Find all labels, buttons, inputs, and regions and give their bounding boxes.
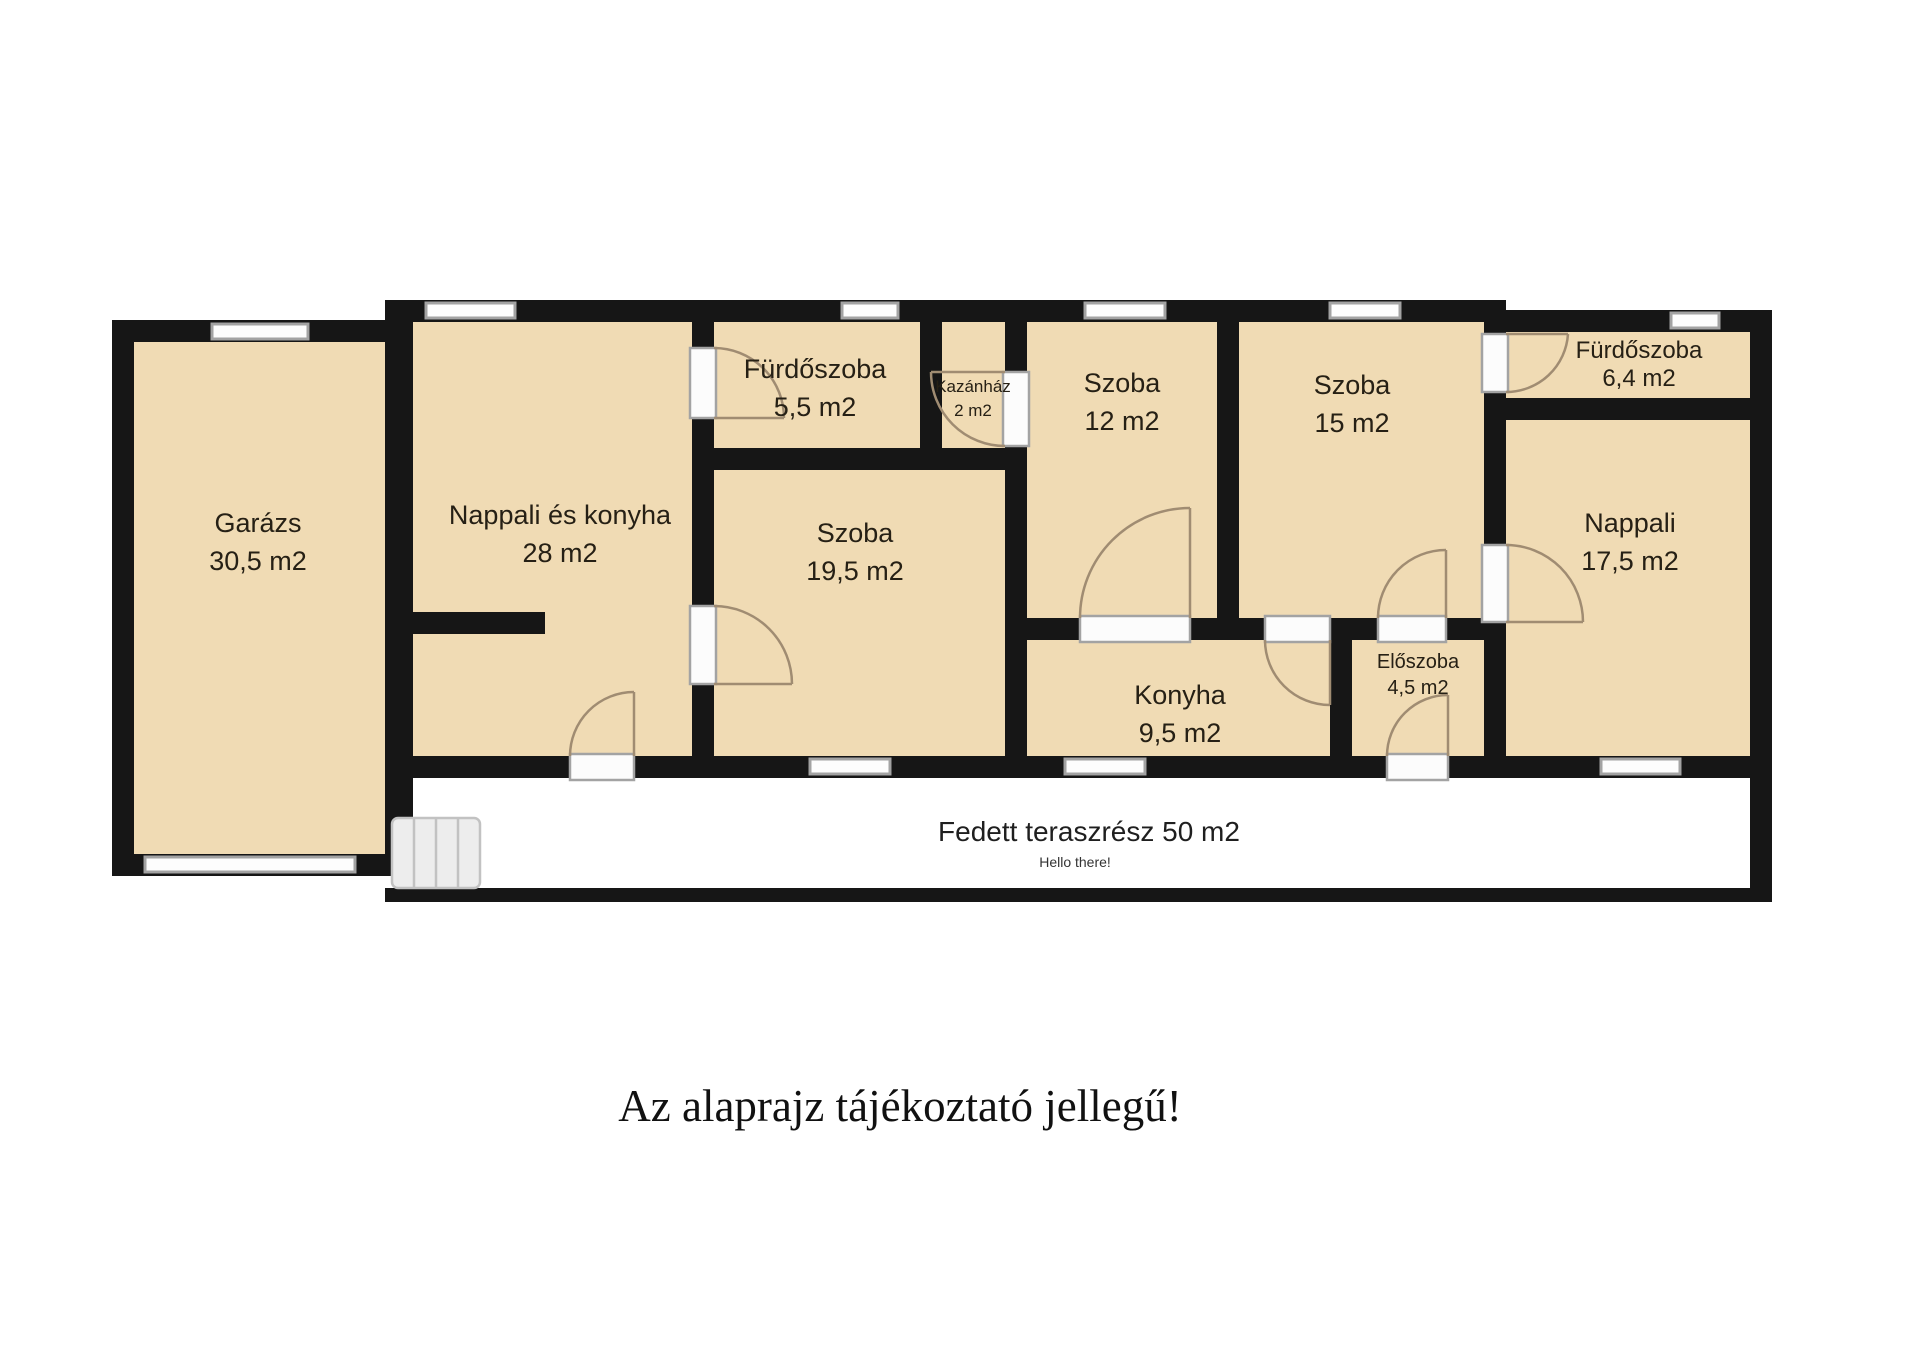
- terrace-label: Fedett teraszrész 50 m2: [938, 816, 1240, 847]
- door-room15-kitchen: [1265, 616, 1330, 642]
- wall-room12-room15: [1217, 300, 1239, 640]
- door-bath64: [1482, 334, 1508, 392]
- label-livingkitchen-name: Nappali és konyha: [449, 500, 672, 530]
- label-kitchen-area: 9,5 m2: [1139, 718, 1222, 748]
- disclaimer-caption: Az alaprajz tájékoztató jellegű!: [618, 1081, 1181, 1131]
- label-room12-area: 12 m2: [1084, 406, 1159, 436]
- label-room15-area: 15 m2: [1314, 408, 1389, 438]
- floorplan-page: Garázs 30,5 m2 Nappali és konyha 28 m2 F…: [0, 0, 1920, 1358]
- window-garage-top: [212, 324, 308, 339]
- label-bath55-area: 5,5 m2: [774, 392, 857, 422]
- label-nappali-name: Nappali: [1584, 508, 1676, 538]
- wall-house-left: [385, 300, 413, 876]
- window-room15-top: [1330, 303, 1400, 318]
- wall-house-top-right: [1484, 310, 1772, 332]
- wall-livingroom-stub: [385, 612, 545, 634]
- label-bath64-name: Fürdőszoba: [1576, 337, 1703, 364]
- window-room195-bottom: [810, 759, 890, 774]
- window-kitchen-bottom: [1065, 759, 1145, 774]
- garage-floor: [134, 342, 385, 854]
- label-boiler-name: Kazánház: [935, 377, 1011, 396]
- label-boiler-area: 2 m2: [954, 401, 992, 420]
- door-room12: [1080, 616, 1190, 642]
- label-nappali-area: 17,5 m2: [1581, 546, 1679, 576]
- label-garage-area: 30,5 m2: [209, 546, 307, 576]
- door-hall-terrace: [1387, 754, 1448, 780]
- terrace-sublabel: Hello there!: [1039, 854, 1111, 870]
- wall-garage-left: [112, 320, 134, 876]
- door-room195: [690, 606, 716, 684]
- door-livingroom-terrace: [570, 754, 634, 780]
- window-room12-top: [1085, 303, 1165, 318]
- house-floor: [413, 322, 1750, 756]
- stairs-icon: [392, 818, 480, 888]
- window-bath64-top: [1671, 313, 1719, 328]
- wall-terrace-outer: [385, 888, 1772, 902]
- label-kitchen-name: Konyha: [1134, 680, 1227, 710]
- wall-bath64-bottom: [1484, 398, 1772, 420]
- door-nappali: [1482, 545, 1508, 622]
- window-bath55-top: [842, 303, 898, 318]
- label-hall-area: 4,5 m2: [1387, 677, 1448, 699]
- floorplan-drawing: Garázs 30,5 m2 Nappali és konyha 28 m2 F…: [0, 0, 1920, 1358]
- label-hall-name: Előszoba: [1377, 651, 1460, 673]
- terrace-labels: Fedett teraszrész 50 m2 Hello there!: [938, 816, 1240, 870]
- window-nappali-bottom: [1601, 759, 1680, 774]
- wall-kitchen-hall: [1330, 618, 1352, 778]
- label-room15-name: Szoba: [1314, 370, 1392, 400]
- garage-door-strip: [145, 857, 355, 872]
- door-bath55: [690, 348, 716, 418]
- label-bath64-area: 6,4 m2: [1602, 365, 1675, 392]
- wall-bath55-bottom: [692, 448, 1027, 470]
- label-garage-name: Garázs: [214, 508, 301, 538]
- label-room12-name: Szoba: [1084, 368, 1162, 398]
- label-room195-area: 19,5 m2: [806, 556, 904, 586]
- window-livingroom-top: [426, 303, 515, 318]
- label-livingkitchen-area: 28 m2: [522, 538, 597, 568]
- label-room195-name: Szoba: [817, 518, 895, 548]
- door-room15-hall: [1378, 616, 1446, 642]
- label-bath55-name: Fürdőszoba: [744, 354, 888, 384]
